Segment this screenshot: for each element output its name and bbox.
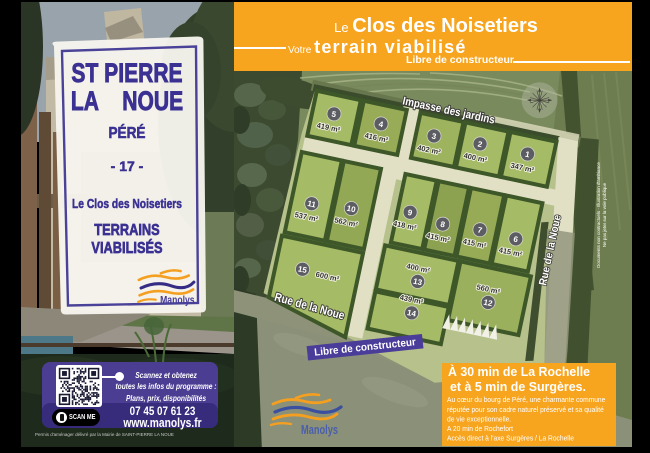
svg-text:À 30 min de La Rochelle: À 30 min de La Rochelle: [448, 364, 590, 379]
svg-text:Au cœur du bourg de Péré, une: Au cœur du bourg de Péré, une charmante …: [447, 396, 605, 404]
svg-text:de vie exceptionnelle.: de vie exceptionnelle.: [447, 415, 511, 423]
svg-text:A 20 min de Rochefort: A 20 min de Rochefort: [447, 425, 513, 433]
svg-text:Ne pas jeter sur la voie publi: Ne pas jeter sur la voie publique: [602, 182, 607, 247]
svg-text:réputée pour son cadre naturel: réputée pour son cadre naturel préservé …: [447, 406, 604, 414]
svg-text:Documents non contractuels · I: Documents non contractuels · Illustratio…: [596, 162, 601, 268]
svg-text:Manolys: Manolys: [160, 294, 194, 306]
svg-text:Accès direct à l'axe Surgères: Accès direct à l'axe Surgères / La Roche…: [447, 434, 574, 442]
svg-text:et à 5 min de Surgères.: et à 5 min de Surgères.: [450, 379, 586, 394]
svg-text:Manolys: Manolys: [301, 423, 338, 437]
